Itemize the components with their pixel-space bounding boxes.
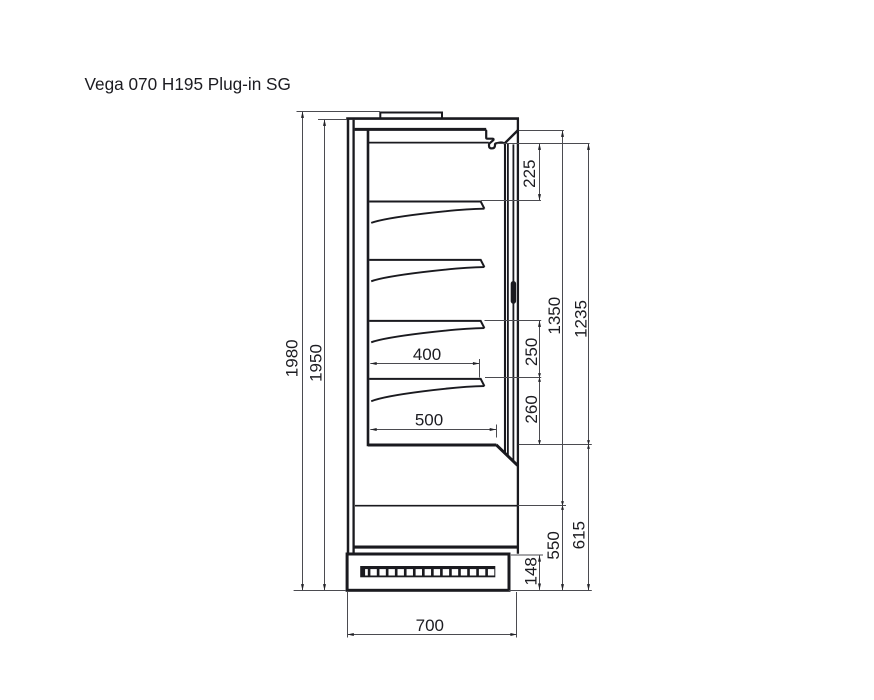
svg-text:400: 400 <box>413 345 441 364</box>
svg-text:700: 700 <box>416 616 444 635</box>
svg-text:1980: 1980 <box>283 339 302 377</box>
svg-text:1235: 1235 <box>571 300 590 338</box>
svg-text:615: 615 <box>569 521 588 549</box>
svg-text:550: 550 <box>544 531 563 559</box>
svg-text:250: 250 <box>522 338 541 366</box>
svg-text:500: 500 <box>415 411 443 430</box>
svg-text:1350: 1350 <box>545 297 564 335</box>
svg-text:1950: 1950 <box>306 344 325 382</box>
svg-text:260: 260 <box>522 395 541 423</box>
svg-text:148: 148 <box>522 557 541 585</box>
svg-text:Vega 070 H195 Plug-in SG: Vega 070 H195 Plug-in SG <box>85 74 291 94</box>
svg-text:225: 225 <box>520 160 539 188</box>
